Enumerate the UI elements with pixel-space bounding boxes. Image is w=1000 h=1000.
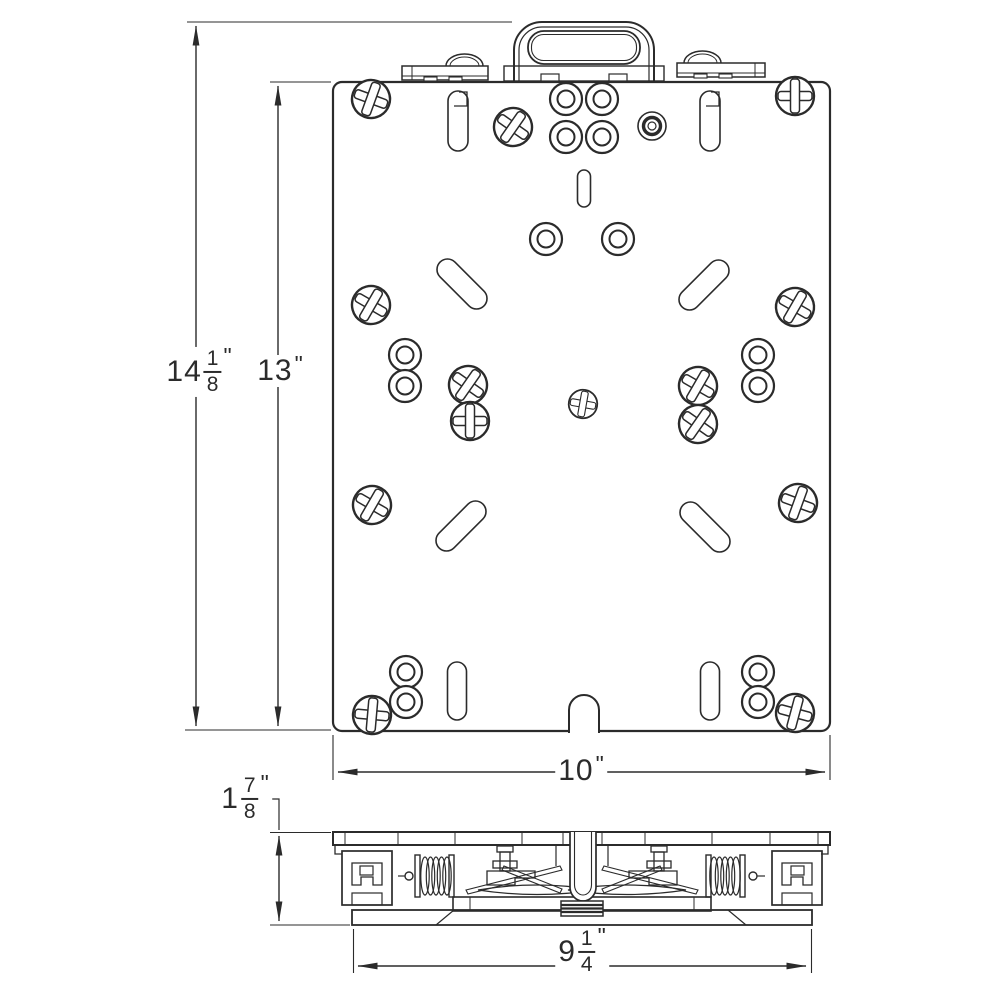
side-hook-right	[772, 851, 822, 905]
handle-tab	[541, 74, 559, 81]
washer-hole	[602, 223, 634, 255]
latch-foot	[719, 74, 732, 78]
dim-plate-height-label: 13 "	[254, 355, 306, 387]
center-slot	[578, 170, 591, 207]
handle-tab	[609, 74, 627, 81]
latch-foot	[449, 77, 462, 81]
mount-slot	[448, 662, 467, 720]
side-spring-right	[706, 855, 765, 897]
washer-hole	[742, 686, 774, 718]
washer-hole	[550, 83, 582, 115]
handle-grip-hole	[528, 31, 640, 64]
washer-hole	[389, 339, 421, 371]
side-spring-left	[398, 855, 454, 897]
latch-right	[677, 51, 765, 78]
dim-profile-height-label: 1 7 8 "	[218, 774, 272, 824]
washer-hole	[390, 686, 422, 718]
washer-hole	[389, 370, 421, 402]
phillips-screw	[776, 77, 814, 115]
latch-foot	[424, 77, 437, 81]
latch-dome-inner	[688, 54, 717, 63]
washer-hole	[586, 83, 618, 115]
keyhole-slot	[448, 91, 468, 151]
inch-mark: "	[596, 753, 604, 776]
handle-grip-hole-inner	[532, 35, 637, 61]
dim-whole: 14	[166, 357, 201, 387]
washer-hole	[550, 121, 582, 153]
handle-base	[504, 66, 664, 81]
latch-dome	[446, 54, 483, 66]
bottom-notch	[569, 695, 599, 733]
dim-whole: 13	[257, 356, 292, 386]
dim-whole: 9	[558, 937, 576, 967]
dim-fraction: 1 8	[204, 348, 222, 396]
dim-overall-height-label: 14 1 8 "	[163, 347, 234, 397]
side-view	[333, 832, 830, 925]
extension-line	[270, 833, 350, 926]
technical-drawing-canvas	[0, 0, 1000, 1000]
keyhole-slot	[700, 91, 720, 151]
inch-mark: "	[295, 353, 303, 376]
dim-base-width-label: 9 1 4 "	[555, 927, 609, 977]
phillips-screw	[451, 402, 489, 440]
inch-mark: "	[261, 772, 269, 795]
dim-whole: 10	[558, 756, 593, 786]
washer-hole	[742, 370, 774, 402]
washer-hole	[530, 223, 562, 255]
latch-left	[402, 54, 488, 81]
technical-drawing-page: 14 1 8 " 13 " 10 " 1 7 8 " 9 1 4 "	[0, 0, 1000, 1000]
inch-mark: "	[598, 925, 606, 948]
washer-hole	[390, 656, 422, 688]
washer-hole	[742, 339, 774, 371]
dim-whole: 1	[221, 784, 239, 814]
pivot-hole	[638, 112, 666, 140]
latch-foot	[694, 74, 707, 78]
dim-fraction: 1 4	[578, 928, 596, 976]
latch-bar	[402, 66, 488, 80]
latch-dome	[684, 51, 721, 63]
carry-handle	[504, 22, 664, 81]
dim-fraction: 7 8	[241, 775, 259, 823]
latch-dome-inner	[450, 57, 479, 66]
mount-slot	[701, 662, 720, 720]
washer-hole	[586, 121, 618, 153]
side-hook-left	[342, 851, 392, 905]
inch-mark: "	[223, 345, 231, 368]
dim-plate-width-label: 10 "	[555, 755, 607, 787]
side-center-post	[570, 832, 596, 901]
front-view	[333, 75, 830, 737]
washer-hole	[742, 656, 774, 688]
